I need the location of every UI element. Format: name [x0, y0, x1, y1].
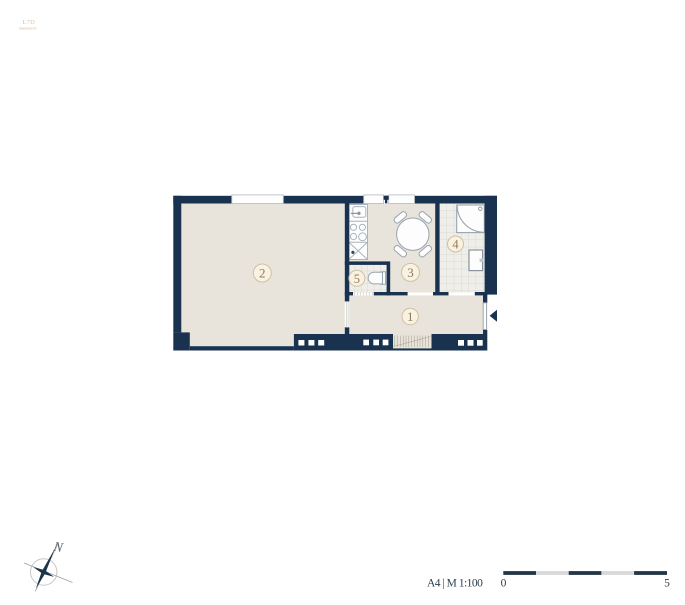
svg-text:0: 0 — [501, 577, 507, 589]
svg-text:4: 4 — [452, 238, 459, 252]
svg-text:3: 3 — [407, 265, 414, 280]
svg-text:2: 2 — [259, 266, 266, 281]
svg-text:5: 5 — [664, 577, 670, 589]
svg-text:5: 5 — [354, 272, 360, 286]
svg-text:A4 | M 1:100: A4 | M 1:100 — [427, 577, 483, 589]
svg-text:1: 1 — [407, 310, 413, 324]
svg-text:APARTAMENTY: APARTAMENTY — [19, 26, 38, 30]
svg-text:L7D: L7D — [23, 19, 36, 26]
